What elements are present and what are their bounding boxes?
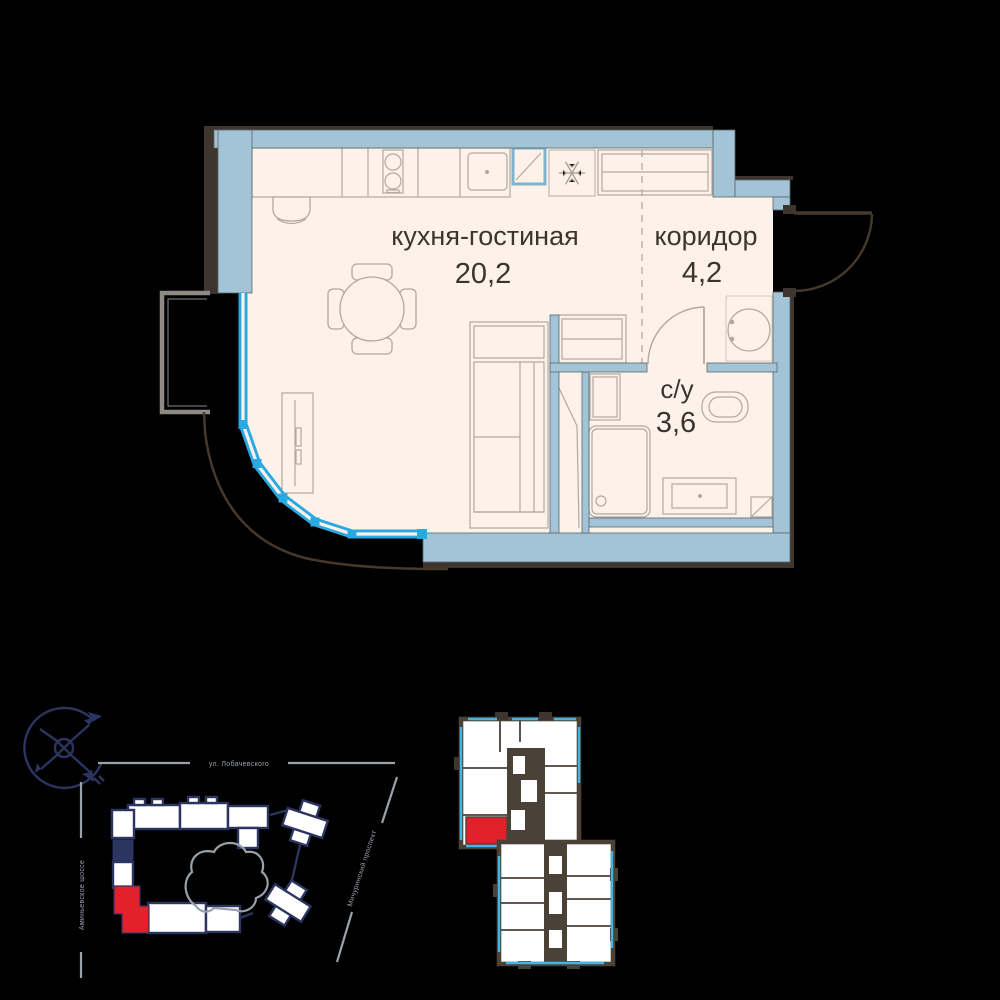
floor-plate-tower-upper	[454, 712, 579, 848]
site-plan: ул. Лобачевского Аминьевское шоссе Мичур…	[24, 708, 397, 978]
site-highlighted-building	[114, 886, 149, 933]
street-label-right: Мичуринский проспект	[346, 829, 378, 908]
floor-plate-tower-lower	[493, 842, 618, 969]
wall-bath-inner	[582, 372, 589, 533]
table-top	[340, 277, 404, 341]
wall-left	[218, 130, 252, 293]
site-buildings	[112, 797, 331, 933]
site-tower-ne	[279, 797, 332, 850]
floorplan-page: кухня-гостиная 20,2 коридор 4,2 с/у 3,6	[0, 0, 1000, 1000]
room-area-kitchen-living: 20,2	[455, 258, 511, 290]
courtyard-outline	[186, 843, 268, 912]
room-area-corridor: 4,2	[682, 257, 722, 289]
wall-bottom	[423, 533, 790, 562]
floorplan-canvas: кухня-гостиная 20,2 коридор 4,2 с/у 3,6	[0, 0, 1000, 1000]
room-name-kitchen-living: кухня-гостиная	[391, 221, 578, 251]
wall-bath-left	[550, 315, 559, 533]
balcony	[162, 293, 210, 412]
street-label-left: Аминьевское шоссе	[79, 860, 86, 930]
wall-bath-top-right	[707, 363, 777, 372]
vent-shaft	[513, 148, 545, 184]
entrance-door	[783, 205, 872, 297]
wall-entry-step-h	[735, 180, 790, 197]
apartment-floor	[246, 148, 773, 533]
room-name-corridor: коридор	[654, 221, 757, 251]
street-label-top: ул. Лобачевского	[209, 760, 269, 768]
wall-top	[214, 130, 713, 148]
wall-right	[773, 292, 790, 533]
wall-bath-bottom	[589, 518, 773, 527]
room-name-bathroom: с/у	[660, 374, 693, 404]
counter-chair	[273, 197, 310, 224]
compass-icon	[24, 708, 104, 788]
wall-entry-step-v	[713, 130, 735, 197]
apartment-floor-plan: кухня-гостиная 20,2 коридор 4,2 с/у 3,6	[162, 126, 872, 569]
wall-bath-top-left	[550, 363, 647, 372]
room-area-bathroom: 3,6	[656, 407, 696, 439]
floor-plate	[454, 712, 618, 969]
